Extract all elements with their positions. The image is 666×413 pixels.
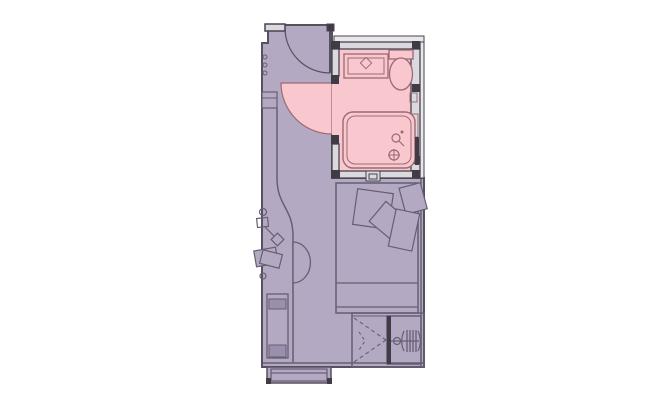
tub-faucet-knob xyxy=(401,131,404,134)
bathroom-outer-wall-top xyxy=(334,36,424,42)
cabinet-shelf-band xyxy=(269,299,286,309)
door-jamb-block xyxy=(331,135,339,144)
entry-wall-right xyxy=(327,24,334,31)
wall-corner-block xyxy=(412,84,420,92)
bathroom-wall-left-upper xyxy=(332,49,339,76)
wall-corner-block xyxy=(412,41,420,49)
cabinet-shelf-band xyxy=(269,345,286,357)
wall-corner-block xyxy=(412,170,420,178)
bathroom-wall-top xyxy=(332,42,420,49)
wall-corner-block xyxy=(331,170,340,178)
wall-niche-shelf xyxy=(262,92,277,108)
towel-rail xyxy=(415,137,419,165)
bathroom-door-opening xyxy=(332,84,340,136)
window-bay-cap xyxy=(327,378,332,384)
bathtub-outer xyxy=(343,112,415,168)
floor-plan-canvas xyxy=(0,0,666,413)
wall-corner-block xyxy=(331,41,340,49)
floor-plan-svg xyxy=(0,0,666,413)
window-bay-cap xyxy=(266,378,271,384)
toilet-bowl xyxy=(390,58,413,90)
bathroom-wall-left-lower xyxy=(332,144,339,171)
door-jamb-block xyxy=(331,75,339,84)
entry-wall-left xyxy=(265,24,285,31)
closet-divider-wall xyxy=(387,316,391,364)
